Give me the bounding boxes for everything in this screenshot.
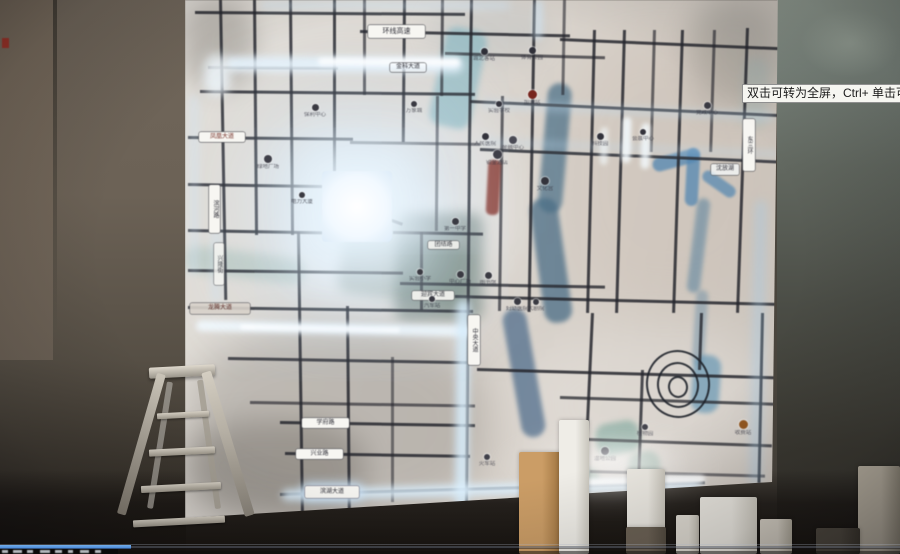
poi-marker-label: 火车站 — [470, 461, 504, 467]
poi-marker-icon — [493, 150, 502, 159]
road-line-vertical — [333, 0, 336, 172]
fullscreen-tooltip-text: 双击可转为全屏，Ctrl+ 单击可转为 — [747, 86, 900, 100]
poi-marker-label: 会展中心 — [626, 136, 660, 142]
led-glow-strip — [260, 2, 510, 9]
osd-text-fragment — [55, 550, 62, 553]
poi-marker-label: 金融中心 — [496, 145, 530, 151]
wall-seam — [53, 0, 57, 330]
fullscreen-tooltip: 双击可转为全屏，Ctrl+ 单击可转为 — [742, 84, 900, 103]
poi-marker-label: 植物园 — [628, 431, 662, 437]
window-reflection — [800, 8, 900, 78]
poi-marker-label: 党政中心 — [690, 110, 724, 116]
poi-marker-icon — [529, 47, 536, 54]
poi-marker-icon — [482, 133, 489, 140]
led-glow-strip — [533, 0, 544, 40]
road-name-badge: 兴隆街 — [214, 243, 224, 285]
illuminated-map-board: 环线高速凤凰大道滨河路兴隆街中央大道东三环学府路兴业路滨湖大道迎宾大道团结路沈放… — [185, 0, 778, 554]
osd-text-fragment — [2, 550, 8, 553]
poi-marker-label: 实验学校 — [482, 108, 516, 114]
poi-marker-label: 保利中心 — [298, 112, 332, 118]
road-name-badge: 东三环 — [743, 119, 755, 171]
poi-marker-label: 体育公园 — [515, 55, 549, 61]
poi-marker-icon — [642, 424, 648, 430]
poi-marker-icon — [457, 271, 464, 278]
poi-marker-icon — [640, 129, 646, 135]
seek-track[interactable] — [0, 544, 900, 545]
osd-text-fragment — [27, 550, 33, 553]
poi-marker-label: 第一中学 — [438, 226, 472, 232]
poi-marker-label: 万象城 — [397, 108, 431, 114]
ladder-step — [133, 516, 225, 528]
poi-marker-label: 图书馆 — [471, 280, 505, 286]
osd-text-strip — [0, 549, 118, 554]
road-name-badge: 沈放湖 — [711, 164, 739, 175]
video-frame: 环线高速凤凰大道滨河路兴隆街中央大道东三环学府路兴业路滨湖大道迎宾大道团结路沈放… — [0, 0, 900, 554]
led-glow-strip — [318, 58, 460, 67]
poi-marker-label: 湿地公园 — [588, 456, 622, 462]
poi-marker-icon — [485, 272, 492, 279]
poi-marker-label: 收费站 — [726, 430, 760, 436]
poi-marker-icon — [264, 155, 272, 163]
poi-marker-icon — [514, 298, 521, 305]
road-name-badge: 凤凰大道 — [199, 132, 245, 142]
ladder-step — [157, 411, 209, 420]
poi-marker-icon — [528, 90, 537, 99]
road-name-badge: 中央大道 — [468, 315, 480, 365]
road-name-badge: 龙腾大道 — [190, 303, 250, 314]
led-glow-strip — [189, 95, 199, 275]
osd-text-fragment — [80, 550, 89, 553]
road-name-badge: 团结路 — [428, 241, 459, 249]
poi-marker-icon — [452, 218, 459, 225]
poi-marker-icon — [601, 447, 609, 455]
poi-marker-icon — [597, 133, 604, 140]
poi-marker-label: 大剧院 — [519, 306, 553, 312]
poi-marker-icon — [299, 192, 305, 198]
poi-marker-label: 文化宫 — [528, 186, 562, 192]
poi-marker-icon — [484, 454, 490, 460]
step-ladder — [105, 352, 270, 554]
osd-text-fragment — [95, 550, 101, 553]
road-name-badge: 学府路 — [302, 418, 349, 428]
poi-marker-label: 汽车站 — [415, 303, 449, 309]
road-line-vertical — [391, 357, 394, 502]
road-line-vertical — [363, 0, 366, 95]
player-timeline[interactable] — [0, 543, 900, 554]
poi-marker-icon — [739, 420, 748, 429]
osd-text-fragment — [68, 550, 73, 553]
red-wall-mark — [2, 38, 9, 48]
poi-marker-icon — [411, 101, 417, 107]
poi-marker-label: 加油站 — [515, 100, 549, 106]
poi-marker-label: 铂金酒店 — [480, 160, 514, 166]
road-name-badge: 金科大道 — [390, 63, 426, 72]
poi-marker-icon — [481, 48, 488, 55]
poi-marker-label: 电力大厦 — [285, 199, 319, 205]
poi-marker-label: 绿地广场 — [251, 164, 285, 170]
poi-marker-icon — [429, 296, 435, 302]
poi-marker-label: 实验小学 — [403, 276, 437, 282]
road-name-badge: 环线高速 — [368, 25, 425, 38]
road-name-badge: 滨湖大道 — [305, 486, 359, 498]
poi-marker-icon — [541, 177, 549, 185]
poi-marker-icon — [704, 102, 711, 109]
project-highlight-square — [322, 171, 392, 242]
poi-marker-icon — [312, 104, 319, 111]
poi-marker-label: 城北客站 — [467, 56, 501, 62]
road-name-badge: 兴业路 — [296, 449, 343, 459]
osd-text-fragment — [13, 550, 22, 553]
poi-marker-icon — [496, 101, 502, 107]
poi-marker-icon — [509, 136, 517, 144]
poi-marker-icon — [533, 299, 539, 305]
poi-marker-icon — [417, 269, 423, 275]
bottom-scanline — [0, 548, 900, 549]
poi-marker-label: 科技园 — [583, 141, 617, 147]
road-name-badge: 滨河路 — [209, 185, 220, 233]
osd-text-fragment — [40, 550, 50, 553]
led-glow-strip — [204, 54, 230, 96]
wall-left-light-patch — [0, 0, 53, 360]
